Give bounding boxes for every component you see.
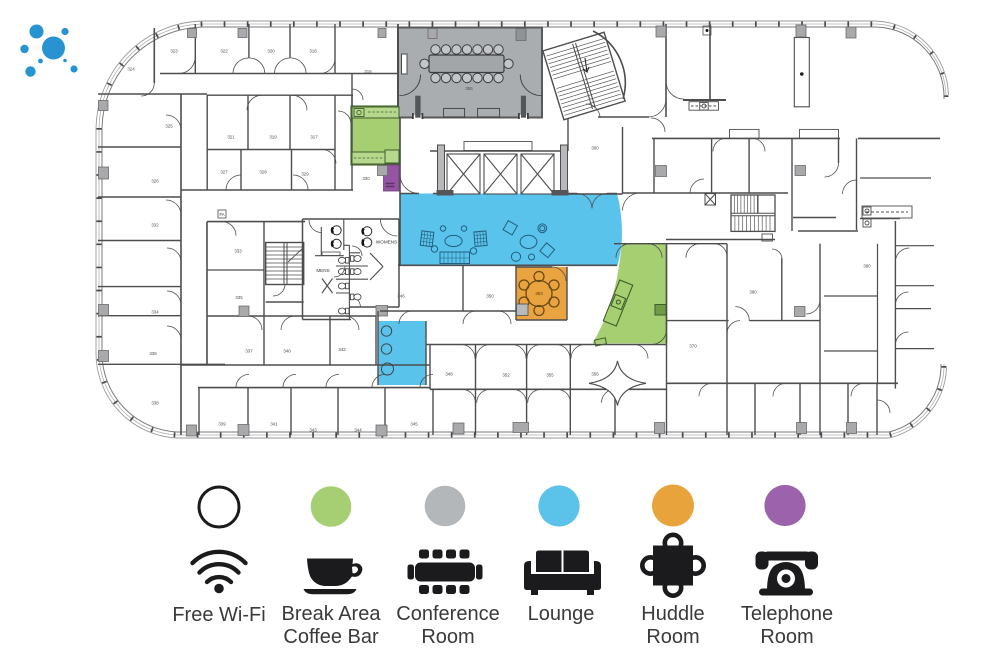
svg-text:Room: Room	[760, 626, 813, 648]
svg-text:370: 370	[689, 344, 697, 349]
svg-text:Free Wi-Fi: Free Wi-Fi	[172, 604, 265, 626]
svg-text:343: 343	[309, 428, 317, 433]
svg-text:344: 344	[354, 428, 362, 433]
svg-text:334: 334	[151, 310, 159, 315]
svg-text:380: 380	[749, 290, 757, 295]
svg-text:Room: Room	[421, 626, 474, 648]
svg-text:338: 338	[151, 401, 159, 406]
svg-text:353: 353	[535, 291, 543, 296]
svg-text:WOMENS: WOMENS	[376, 240, 397, 245]
svg-text:356: 356	[591, 372, 599, 377]
svg-text:316: 316	[364, 69, 372, 74]
svg-text:Coffee Bar: Coffee Bar	[283, 626, 379, 648]
svg-text:322: 322	[220, 49, 228, 54]
svg-text:348: 348	[445, 372, 453, 377]
svg-text:Huddle: Huddle	[641, 603, 704, 625]
svg-text:340: 340	[283, 349, 291, 354]
svg-text:319: 319	[269, 135, 277, 140]
svg-text:318: 318	[309, 49, 317, 54]
svg-text:355: 355	[546, 373, 554, 378]
svg-text:335: 335	[235, 295, 243, 300]
svg-text:326: 326	[151, 179, 159, 184]
svg-text:345: 345	[410, 422, 418, 427]
svg-text:390: 390	[863, 264, 871, 269]
svg-text:Lounge: Lounge	[528, 603, 595, 625]
svg-text:333: 333	[234, 249, 242, 254]
svg-text:339: 339	[218, 422, 226, 427]
svg-text:Room: Room	[646, 626, 699, 648]
svg-text:330: 330	[362, 176, 370, 181]
svg-text:341: 341	[270, 422, 278, 427]
svg-text:355: 355	[465, 86, 473, 91]
svg-text:332: 332	[151, 223, 159, 228]
svg-text:350: 350	[486, 294, 494, 299]
svg-text:324: 324	[127, 67, 135, 72]
svg-text:Break Area: Break Area	[282, 603, 382, 625]
svg-text:300: 300	[591, 146, 599, 151]
svg-text:325: 325	[165, 124, 173, 129]
svg-text:328: 328	[259, 170, 267, 175]
svg-text:323: 323	[170, 49, 178, 54]
svg-text:337: 337	[245, 349, 253, 354]
svg-text:MENS: MENS	[316, 268, 329, 273]
svg-text:321: 321	[227, 135, 235, 140]
svg-text:320: 320	[267, 49, 275, 54]
svg-text:342: 342	[338, 347, 346, 352]
svg-text:FA: FA	[219, 212, 224, 217]
svg-text:336: 336	[149, 351, 157, 356]
svg-text:352: 352	[502, 373, 510, 378]
svg-text:346: 346	[397, 294, 405, 299]
svg-text:Conference: Conference	[396, 603, 499, 625]
svg-text:Telephone: Telephone	[741, 603, 833, 625]
svg-text:317: 317	[310, 135, 318, 140]
svg-text:329: 329	[301, 172, 309, 177]
svg-text:327: 327	[220, 170, 228, 175]
